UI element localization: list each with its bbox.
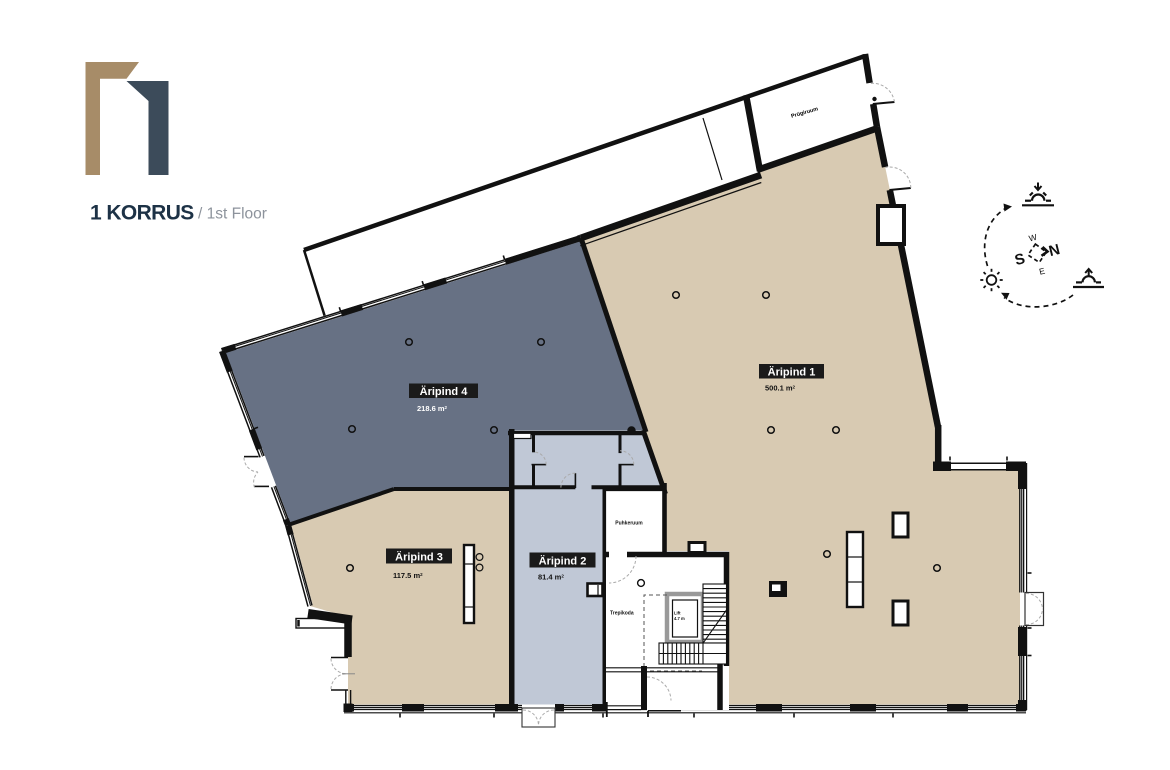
svg-text:Äripind 1: Äripind 1 xyxy=(768,366,816,379)
svg-text:Prügiruum: Prügiruum xyxy=(791,106,819,119)
svg-text:E: E xyxy=(1038,265,1046,276)
svg-text:1 KORRUS: 1 KORRUS xyxy=(90,202,194,225)
svg-text:Äripind 2: Äripind 2 xyxy=(539,555,587,568)
svg-text:Äripind 4: Äripind 4 xyxy=(420,385,469,398)
svg-text:218.6 m2: 218.6 m2 xyxy=(417,404,448,413)
svg-text:W: W xyxy=(1028,232,1038,244)
svg-text:Trepikoda: Trepikoda xyxy=(610,611,634,617)
svg-text:Äripind 3: Äripind 3 xyxy=(395,551,443,564)
svg-text:81.4 m2: 81.4 m2 xyxy=(538,573,564,582)
svg-text:Puhkeruum: Puhkeruum xyxy=(615,521,643,527)
svg-text:N: N xyxy=(1047,241,1062,260)
svg-text:S: S xyxy=(1013,250,1027,269)
svg-text:117.5 m2: 117.5 m2 xyxy=(393,571,423,580)
svg-text:Lift: Lift xyxy=(674,611,681,616)
svg-text:500.1 m2: 500.1 m2 xyxy=(765,384,796,393)
svg-text:4.7 m: 4.7 m xyxy=(674,616,685,621)
svg-text:/ 1st Floor: / 1st Floor xyxy=(198,206,267,223)
